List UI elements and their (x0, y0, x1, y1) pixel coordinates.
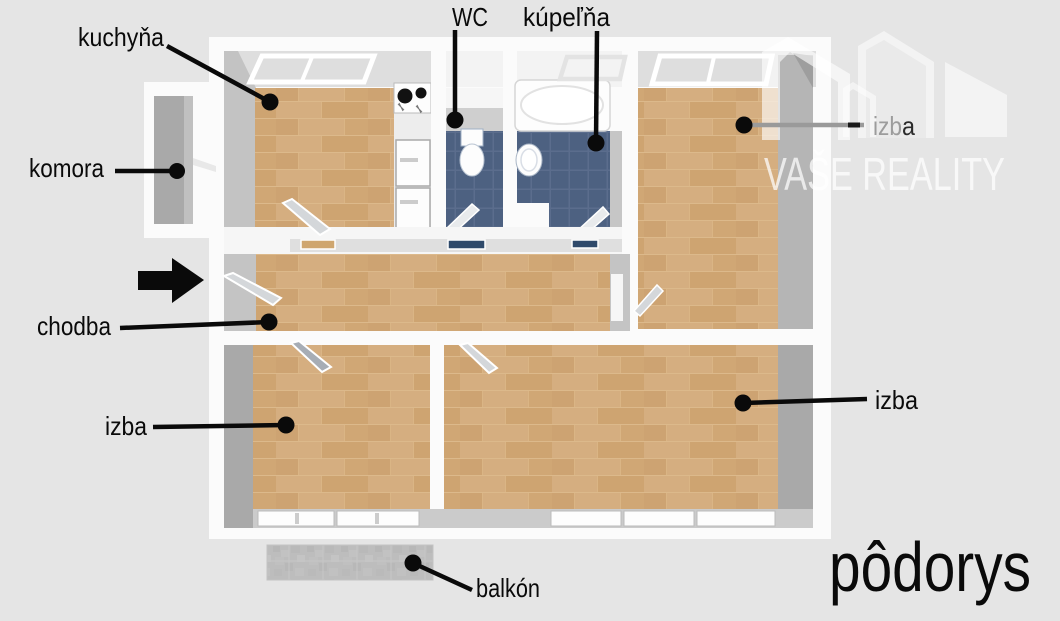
svg-text:kúpeľňa: kúpeľňa (523, 2, 610, 32)
svg-text:balkón: balkón (476, 573, 540, 603)
svg-text:a: a (902, 111, 915, 141)
svg-text:kuchyňa: kuchyňa (78, 22, 164, 52)
svg-text:VAŠE REALITY: VAŠE REALITY (764, 148, 1005, 200)
svg-text:komora: komora (29, 153, 104, 183)
svg-text:WC: WC (452, 2, 488, 32)
svg-text:izba: izba (105, 411, 147, 441)
svg-text:chodba: chodba (37, 311, 111, 341)
svg-text:pôdorys: pôdorys (829, 528, 1031, 606)
svg-text:izba: izba (875, 385, 918, 415)
svg-text:izb: izb (873, 111, 902, 141)
